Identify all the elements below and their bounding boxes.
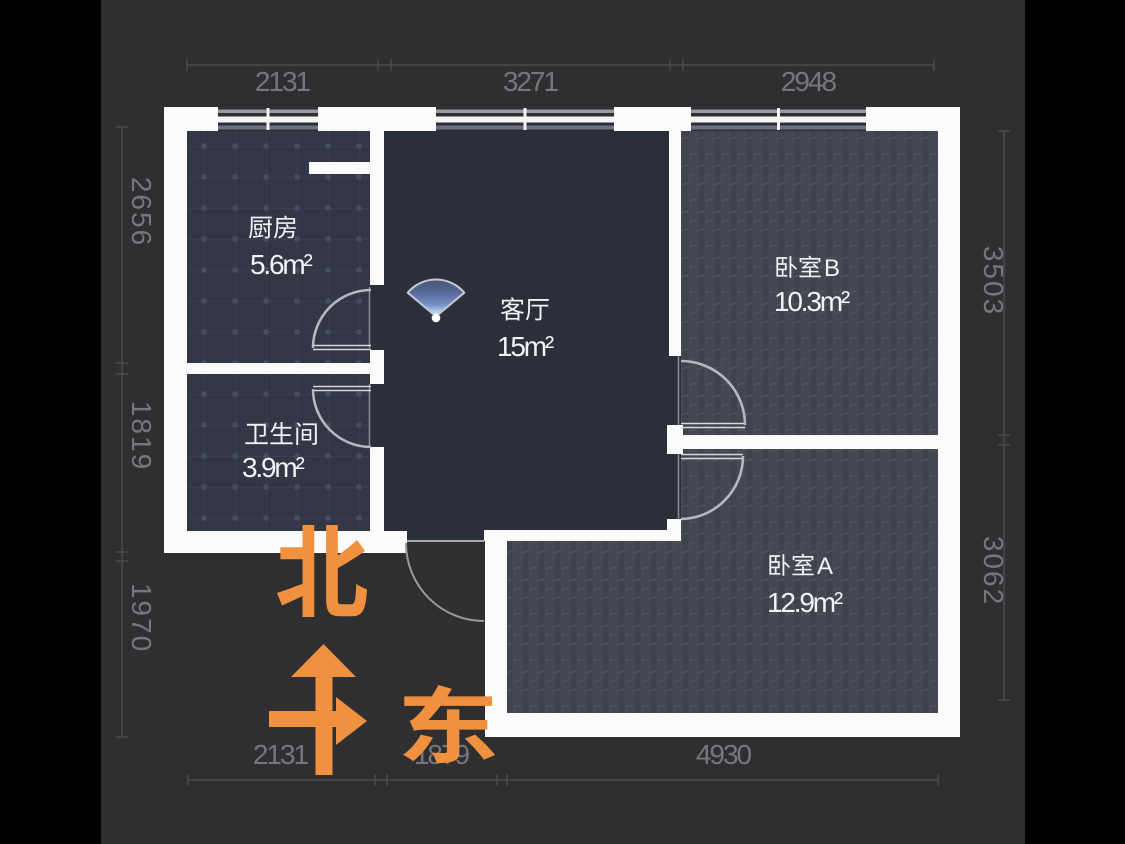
svg-text:A: A: [817, 553, 833, 580]
svg-text:2656: 2656: [126, 177, 157, 247]
svg-text:3271: 3271: [503, 66, 559, 97]
svg-text:10.3m²: 10.3m²: [774, 286, 850, 317]
svg-text:2948: 2948: [781, 66, 837, 97]
svg-text:3503: 3503: [978, 246, 1009, 316]
svg-text:1819: 1819: [126, 401, 157, 471]
svg-text:2131: 2131: [253, 739, 309, 770]
svg-text:B: B: [824, 255, 840, 282]
svg-text:3.9m²: 3.9m²: [242, 452, 304, 483]
svg-text:4930: 4930: [696, 739, 752, 770]
svg-text:5.6m²: 5.6m²: [250, 249, 312, 280]
svg-text:2131: 2131: [255, 66, 311, 97]
svg-text:1970: 1970: [126, 583, 157, 653]
svg-text:15m²: 15m²: [497, 331, 554, 362]
svg-text:12.9m²: 12.9m²: [767, 587, 843, 618]
svg-text:3062: 3062: [978, 536, 1009, 606]
